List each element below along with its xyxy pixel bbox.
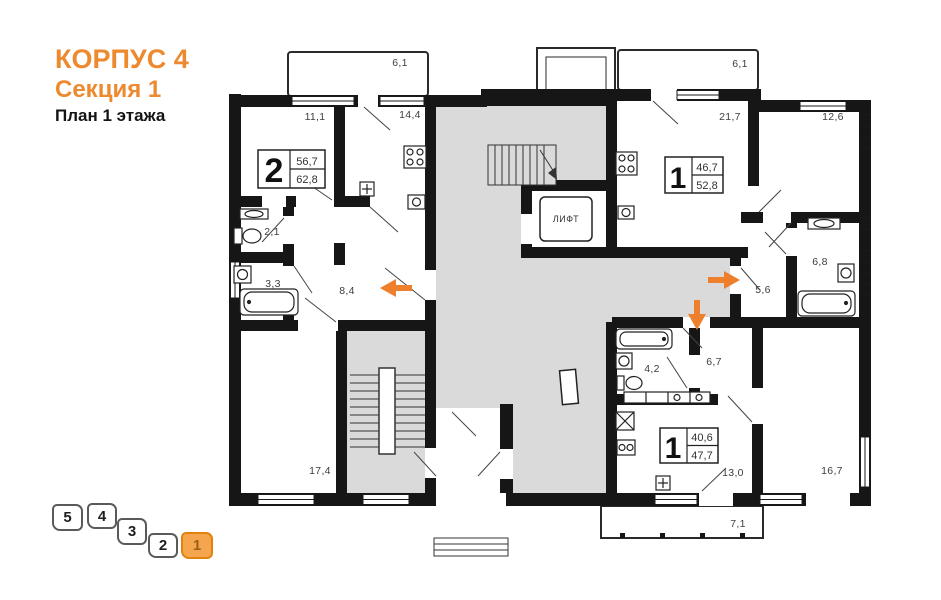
toilet-icon [617, 376, 642, 390]
room-label-wc-left: 2,1 [264, 226, 280, 238]
apartment-living-area: 46,7 [696, 162, 717, 174]
electric-panel-icon [360, 182, 374, 196]
room-label-hall-bottom: 6,7 [706, 356, 722, 368]
section-tab-2[interactable]: 2 [148, 533, 178, 558]
bathtub-icon [240, 289, 298, 315]
room-label-hall-right: 5,6 [755, 284, 771, 296]
washer-icon [616, 353, 632, 369]
kitchen-sink-icon [408, 195, 425, 209]
vanity-sink-icon [808, 218, 840, 229]
floor-plan-drawing: ЛИФТ [0, 0, 941, 600]
apartment-rooms-count: 1 [670, 162, 687, 195]
room-label-bath-right: 6,8 [812, 256, 828, 268]
washer-icon [234, 266, 251, 283]
apartment-card-1room-right[interactable]: 1 46,7 52,8 [665, 157, 723, 195]
balcony-top-center-inner [546, 57, 606, 90]
stove-icon [616, 152, 637, 175]
apartment-rooms-count: 1 [665, 432, 682, 465]
section-tab-1[interactable]: 1 [181, 532, 213, 559]
room-label-living-right: 21,7 [719, 111, 741, 123]
washer-icon [838, 264, 854, 282]
apartment-living-area: 40,6 [691, 432, 712, 444]
room-label-bath-bottom: 4,2 [644, 363, 660, 375]
corridor-panel-icon [560, 369, 579, 404]
stove-icon [617, 440, 635, 455]
balcony-right [618, 50, 758, 90]
room-label-hall-left: 8,4 [339, 285, 355, 297]
elevator-label: ЛИФТ [553, 214, 579, 224]
apartment-total-area: 47,7 [691, 450, 712, 462]
section-tab-3[interactable]: 3 [117, 518, 147, 545]
toilet-icon [234, 228, 261, 244]
entrance-steps [434, 538, 508, 556]
kitchen-sink-icon [618, 206, 634, 219]
bathtub-icon [798, 291, 855, 316]
stairs-upper-icon [488, 145, 557, 185]
room-label-bath-left: 3,3 [265, 278, 281, 290]
electric-panel-icon [656, 476, 670, 490]
bathtub-icon [616, 329, 672, 349]
floor-plan-page: КОРПУС 4 Секция 1 План 1 этажа [0, 0, 941, 600]
fridge-icon [616, 412, 634, 430]
room-label-balcony-bottom: 7,1 [730, 518, 746, 530]
room-label-room-right: 12,6 [822, 111, 844, 123]
room-label-kitchen-left: 14,4 [399, 109, 421, 121]
section-tab-4[interactable]: 4 [87, 503, 117, 529]
apartment-card-2room[interactable]: 2 56,7 62,8 [258, 150, 325, 190]
kitchen-counter-icon [624, 392, 710, 403]
section-tab-5[interactable]: 5 [52, 504, 83, 531]
room-label-kitchen-bottom: 13,0 [722, 467, 744, 479]
apartment-rooms-count: 2 [265, 152, 284, 190]
apartment-total-area: 52,8 [696, 180, 717, 192]
stove-icon [404, 146, 426, 168]
apartment-total-area: 62,8 [296, 174, 317, 186]
room-label-balcony-right: 6,1 [732, 58, 748, 70]
apartment-living-area: 56,7 [296, 156, 317, 168]
vanity-sink-icon [240, 209, 268, 219]
room-label-balcony-left: 6,1 [392, 57, 408, 69]
room-label-room-bottom-left: 17,4 [309, 465, 331, 477]
elevator: ЛИФТ [532, 191, 606, 247]
room-label-room-left: 11,1 [305, 111, 326, 123]
entrance-arrow-left-apartment [380, 279, 412, 297]
apartment-card-1room-bottom[interactable]: 1 40,6 47,7 [660, 428, 718, 465]
room-label-room-bottom-right: 16,7 [821, 465, 843, 477]
